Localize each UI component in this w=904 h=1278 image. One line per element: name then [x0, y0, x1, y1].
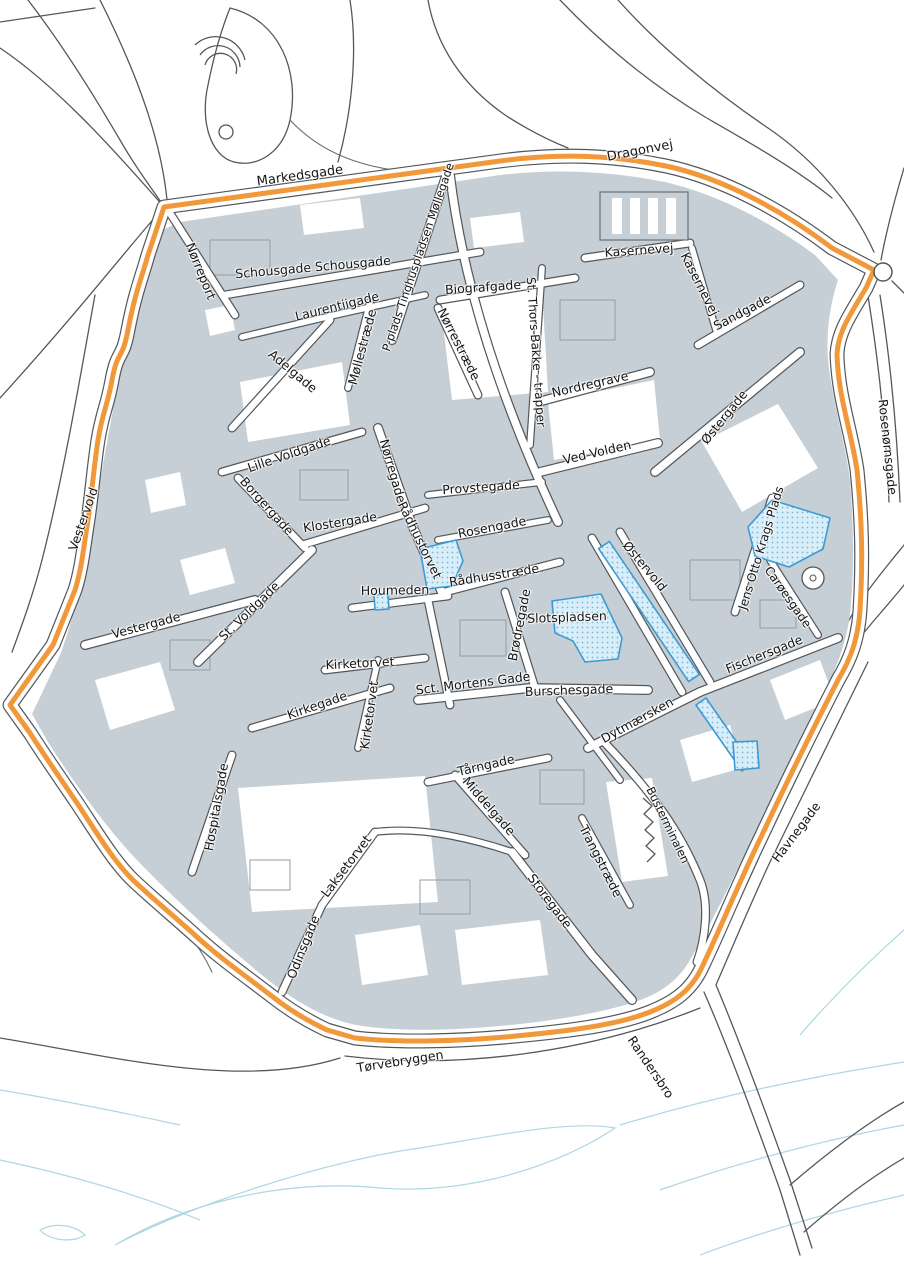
street-label-provstegade: Provstegade [442, 477, 520, 497]
street-label-schousgade-schousgade: Schousgade Schousgade [235, 253, 392, 282]
street-label-ved-volden: Ved Volden [561, 437, 632, 467]
street-label-markedsgade: Markedsgade [256, 163, 344, 190]
street-label-nørrestræde: Nørrestræde [434, 305, 483, 382]
street-label-rosenørnsgade: Rosenørnsgade [876, 398, 901, 495]
street-label-sct-mortens-gade: Sct. Mortens Gade [415, 669, 531, 698]
street-label-hospitalsgade: Hospitalsgade [201, 762, 231, 852]
street-labels-layer: MarkedsgadeDragonvejNørreportSchousgade … [0, 0, 904, 1278]
street-label-laksetorvet: Laksetorvet [318, 832, 374, 900]
street-label-kasernevej: Kasernevej [604, 240, 674, 260]
street-label-nordregrave: Nordregrave [550, 368, 630, 400]
street-label-tørvebryggen: Tørvebryggen [356, 1047, 445, 1075]
street-label-kirkegade: Kirkegade [285, 688, 349, 723]
street-label-klostergade: Klostergade [302, 509, 378, 535]
street-label-nørreport: Nørreport [183, 240, 219, 301]
street-label-borgergade: Borgergade [237, 474, 297, 538]
street-label-tårngade: Tårngade [456, 751, 516, 779]
street-label-lille-voldgade: Lille Voldgade [245, 433, 332, 475]
street-label-østervold: Østervold [620, 538, 670, 594]
street-label-randersbro: Randersbro [625, 1033, 678, 1101]
street-label-kirketorvet: Kirketorvet [357, 680, 381, 750]
street-label-rådhusstræde: Rådhusstræde [448, 560, 540, 589]
street-label-burschesgade: Burschesgade [525, 681, 614, 699]
street-label-kasernevej: Kasernevej [678, 250, 723, 318]
street-label-vestervold: Vestervold [65, 485, 101, 552]
street-label-møllestræde: Møllestræde [345, 308, 380, 387]
street-label-vestergade: Vestergade [110, 609, 182, 642]
street-label-slotspladsen: Slotspladsen [527, 608, 607, 626]
street-label-østergade: Østergade [698, 387, 751, 447]
street-label-odinsgade: Odinsgade [284, 913, 323, 981]
street-label-houmeden: Houmeden [361, 582, 430, 598]
street-label-rosengade: Rosengade [457, 513, 528, 541]
city-map: MarkedsgadeDragonvejNørreportSchousgade … [0, 0, 904, 1278]
street-label-carøesgade: Carøesgade [762, 564, 815, 631]
street-label-dytmærsken: Dytmærsken [598, 694, 676, 746]
street-label-kirketorvet: Kirketorvet [325, 654, 395, 673]
street-label-middelgade: Middelgade [460, 774, 519, 839]
street-label-havnegade: Havnegade [769, 799, 824, 865]
street-label-st-voldgade: St. Voldgade [216, 578, 283, 643]
street-label-st-thors-bakke-trapper: St. Thors-Bakke - trapper [524, 277, 548, 428]
street-label-busterminalen: Busterminalen [643, 784, 692, 865]
street-label-nørregade: Nørregade [377, 437, 410, 504]
street-label-fischersgade: Fischersgade [723, 632, 804, 676]
street-label-adelgade: Adelgade [266, 346, 321, 395]
street-label-biografgade: Biografgade [445, 277, 522, 297]
street-label-rådhustorvet: Rådhustorvet [395, 499, 445, 581]
street-label-storegade: Storegade [525, 871, 576, 931]
street-label-dragonvej: Dragonvej [606, 137, 675, 165]
street-label-trangstræde: Trangstræde [576, 822, 625, 899]
